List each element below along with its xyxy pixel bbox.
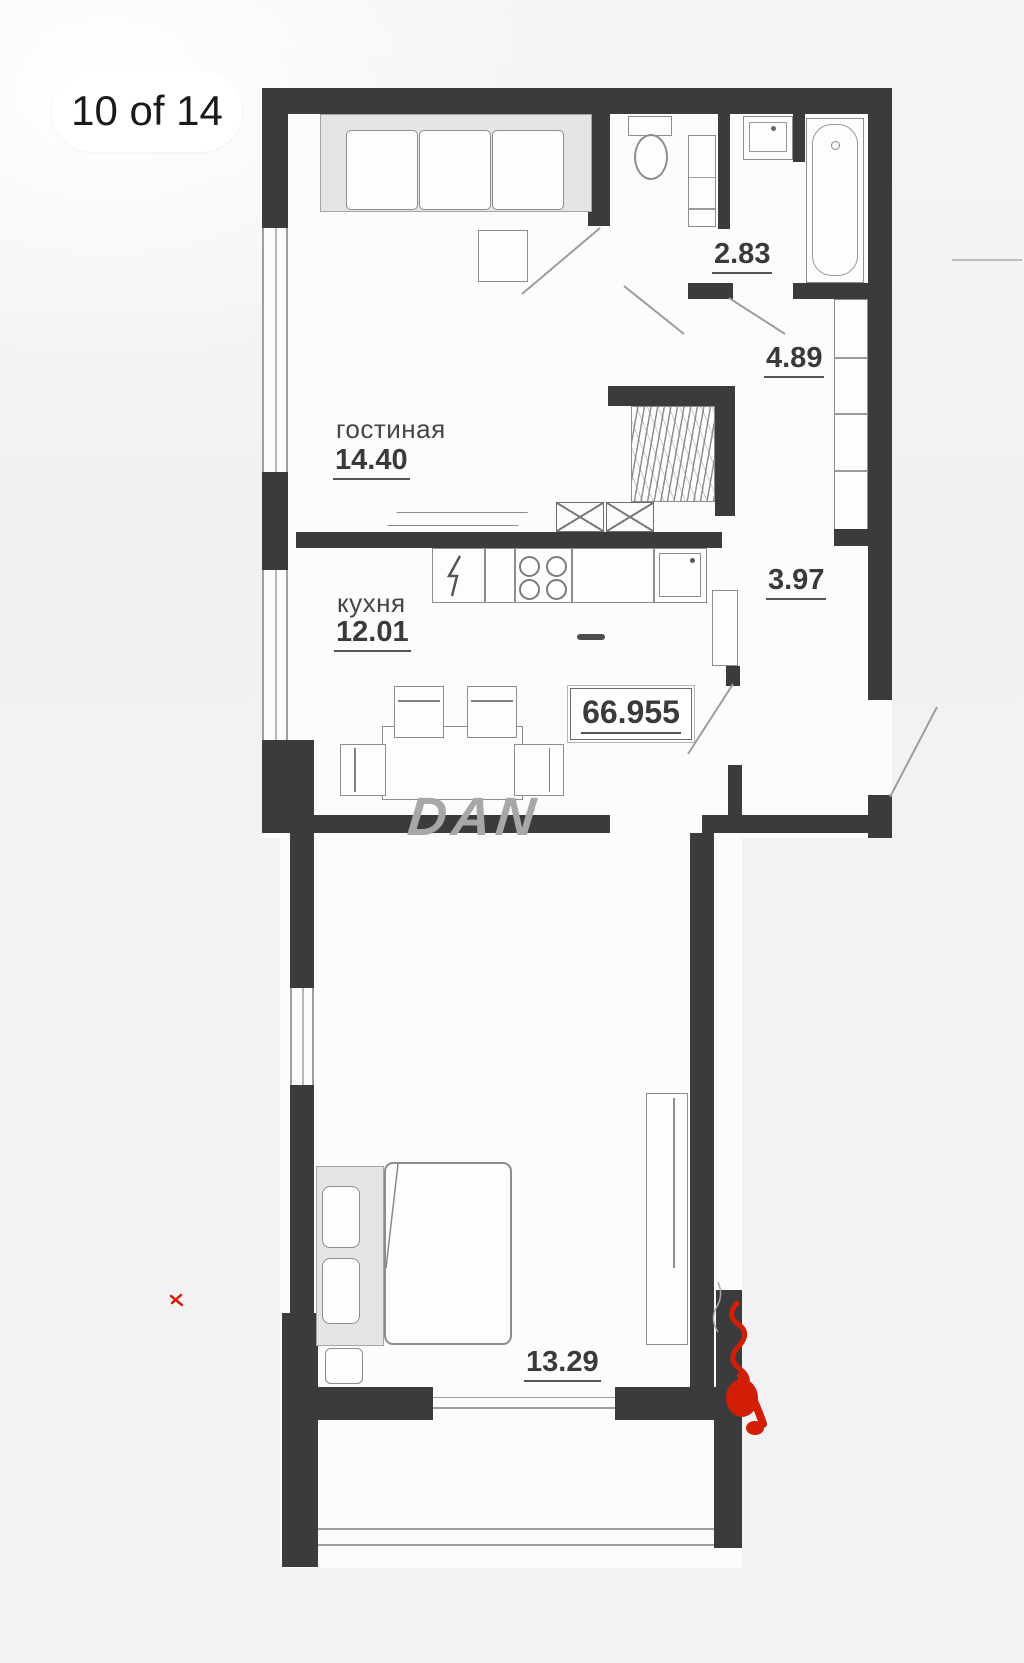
- built-in-closet: [631, 406, 715, 502]
- toilet-bowl: [634, 134, 668, 180]
- window-sill-shelf: [387, 512, 528, 526]
- watermark: DAN: [405, 786, 544, 848]
- nightstand: [322, 1186, 360, 1248]
- nightstand: [322, 1258, 360, 1324]
- wall-segment: [688, 283, 733, 299]
- living-room-area: 14.40: [333, 446, 410, 480]
- bathroom-sink: [743, 116, 793, 160]
- window-kitchen-left: [262, 570, 288, 740]
- toilet-tank: [628, 116, 672, 136]
- stove-burner: [546, 579, 567, 600]
- stove-burner: [519, 579, 540, 600]
- electric-symbol: [444, 554, 468, 598]
- kitchen-wall-cabinet: [606, 502, 654, 532]
- coffee-table: [478, 230, 528, 282]
- wall-segment: [714, 1420, 742, 1548]
- wall-segment: [868, 114, 892, 700]
- chair: [394, 686, 444, 738]
- total-area-box: 66.955: [570, 688, 692, 740]
- stove-burner: [519, 556, 540, 577]
- wall-segment: [690, 833, 714, 1387]
- hall-cabinet: [834, 299, 868, 545]
- kitchen-area: 12.01: [334, 618, 411, 652]
- window-bedroom-bottom: [433, 1387, 615, 1420]
- hall-area: 4.89: [764, 344, 824, 378]
- wall-segment: [726, 666, 740, 686]
- sofa-cushion: [419, 130, 491, 210]
- kitchen-wall-cabinet: [556, 502, 604, 532]
- wall-segment: [262, 472, 288, 570]
- wall-segment: [615, 1387, 742, 1420]
- chair: [467, 686, 517, 738]
- wall-segment: [290, 833, 314, 988]
- page-indicator-text: 10 of 14: [71, 87, 223, 135]
- fridge: [712, 590, 738, 666]
- wall-segment: [728, 765, 742, 818]
- wall-segment: [282, 1313, 318, 1567]
- red-cross-mark: [171, 1295, 182, 1305]
- wall-segment: [290, 1085, 314, 1313]
- total-area-value: 66.955: [581, 694, 681, 734]
- kitchen-name: кухня: [337, 588, 406, 619]
- stove-burner: [546, 556, 567, 577]
- page-indicator-badge: 10 of 14: [52, 70, 242, 152]
- wall-segment: [715, 386, 735, 516]
- wall-segment: [793, 114, 805, 162]
- corridor-area: 3.97: [766, 566, 826, 600]
- bathtub: [806, 118, 864, 283]
- wall-segment: [702, 815, 892, 833]
- bed: [384, 1162, 512, 1345]
- balcony-rail: [318, 1528, 714, 1546]
- wall-segment: [262, 88, 892, 114]
- chair: [340, 744, 386, 796]
- wall-segment: [292, 1387, 433, 1420]
- stool: [325, 1348, 363, 1384]
- wall-segment: [718, 114, 730, 229]
- floor-plan-photo: 10 of 14: [0, 0, 1024, 1663]
- window-living-left: [262, 228, 288, 472]
- counter-handle: [577, 634, 605, 640]
- wc-area: 2.83: [712, 240, 772, 274]
- living-room-name: гостиная: [336, 414, 446, 445]
- bedroom-area: 13.29: [524, 1348, 601, 1382]
- sofa-cushion: [346, 130, 418, 210]
- bedroom-wardrobe: [646, 1093, 688, 1345]
- wall-segment: [296, 532, 722, 548]
- window-bedroom-left: [290, 988, 314, 1085]
- wc-cabinet: [688, 135, 716, 227]
- wall-segment: [262, 88, 288, 228]
- kitchen-sink: [659, 553, 701, 597]
- sofa-cushion: [492, 130, 564, 210]
